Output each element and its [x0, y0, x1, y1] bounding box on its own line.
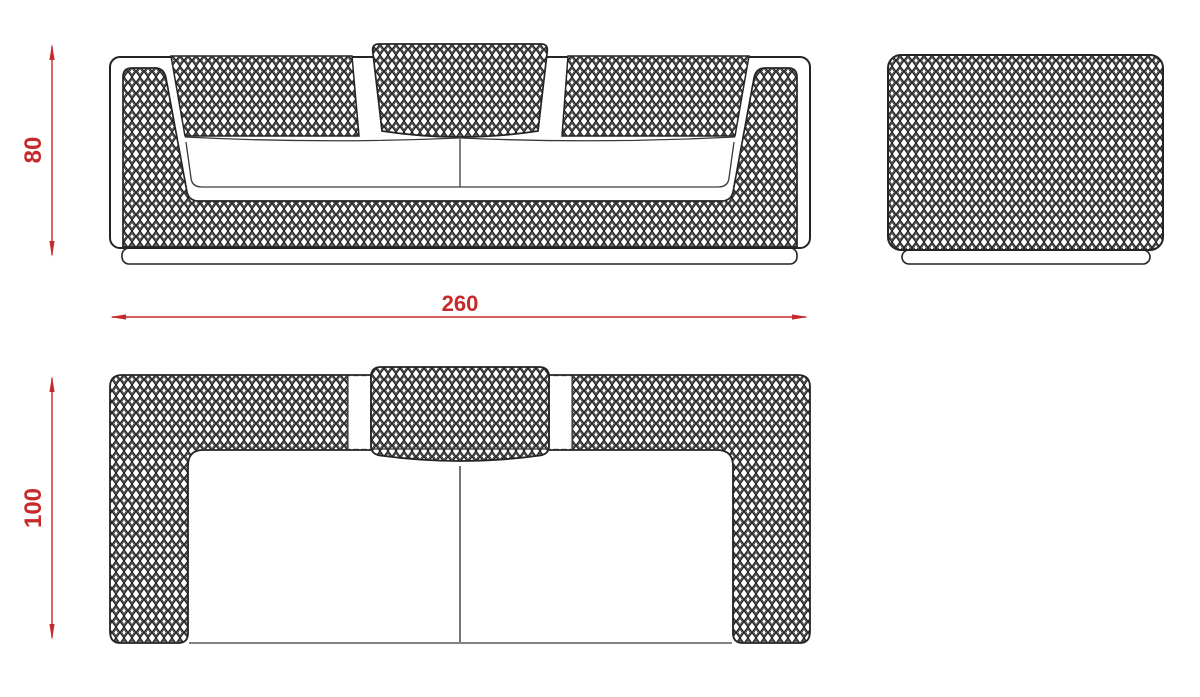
front-backrest-left: [171, 56, 359, 136]
dimension-overall-depth: 100: [20, 376, 55, 640]
side-body-panel: [888, 55, 1163, 250]
front-plinth: [122, 248, 797, 264]
front-headrest-cushion: [373, 44, 548, 137]
sofa-plan-view: [110, 367, 810, 643]
plan-headrest-block: [371, 367, 549, 461]
dimension-front-height: 80: [20, 44, 55, 257]
arrow-down-icon: [49, 624, 54, 640]
arrow-up-icon: [49, 376, 54, 392]
plan-headrest-slot-left: [348, 376, 371, 449]
arrow-down-icon: [49, 241, 54, 257]
sofa-front-view: [110, 44, 810, 264]
side-plinth: [902, 250, 1150, 264]
arrow-right-icon: [792, 314, 808, 319]
dimension-overall-depth-label: 100: [20, 488, 47, 528]
dimension-overall-width: 260: [110, 291, 808, 320]
sofa-side-view: [888, 55, 1163, 264]
dimension-overall-width-label: 260: [442, 291, 479, 316]
plan-headrest-slot-right: [550, 376, 573, 449]
arrow-left-icon: [110, 314, 126, 319]
arrow-up-icon: [49, 44, 54, 60]
front-backrest-right: [562, 56, 749, 136]
dimension-front-height-label: 80: [20, 137, 47, 164]
sofa-technical-drawing: 80 260 100: [0, 0, 1200, 697]
